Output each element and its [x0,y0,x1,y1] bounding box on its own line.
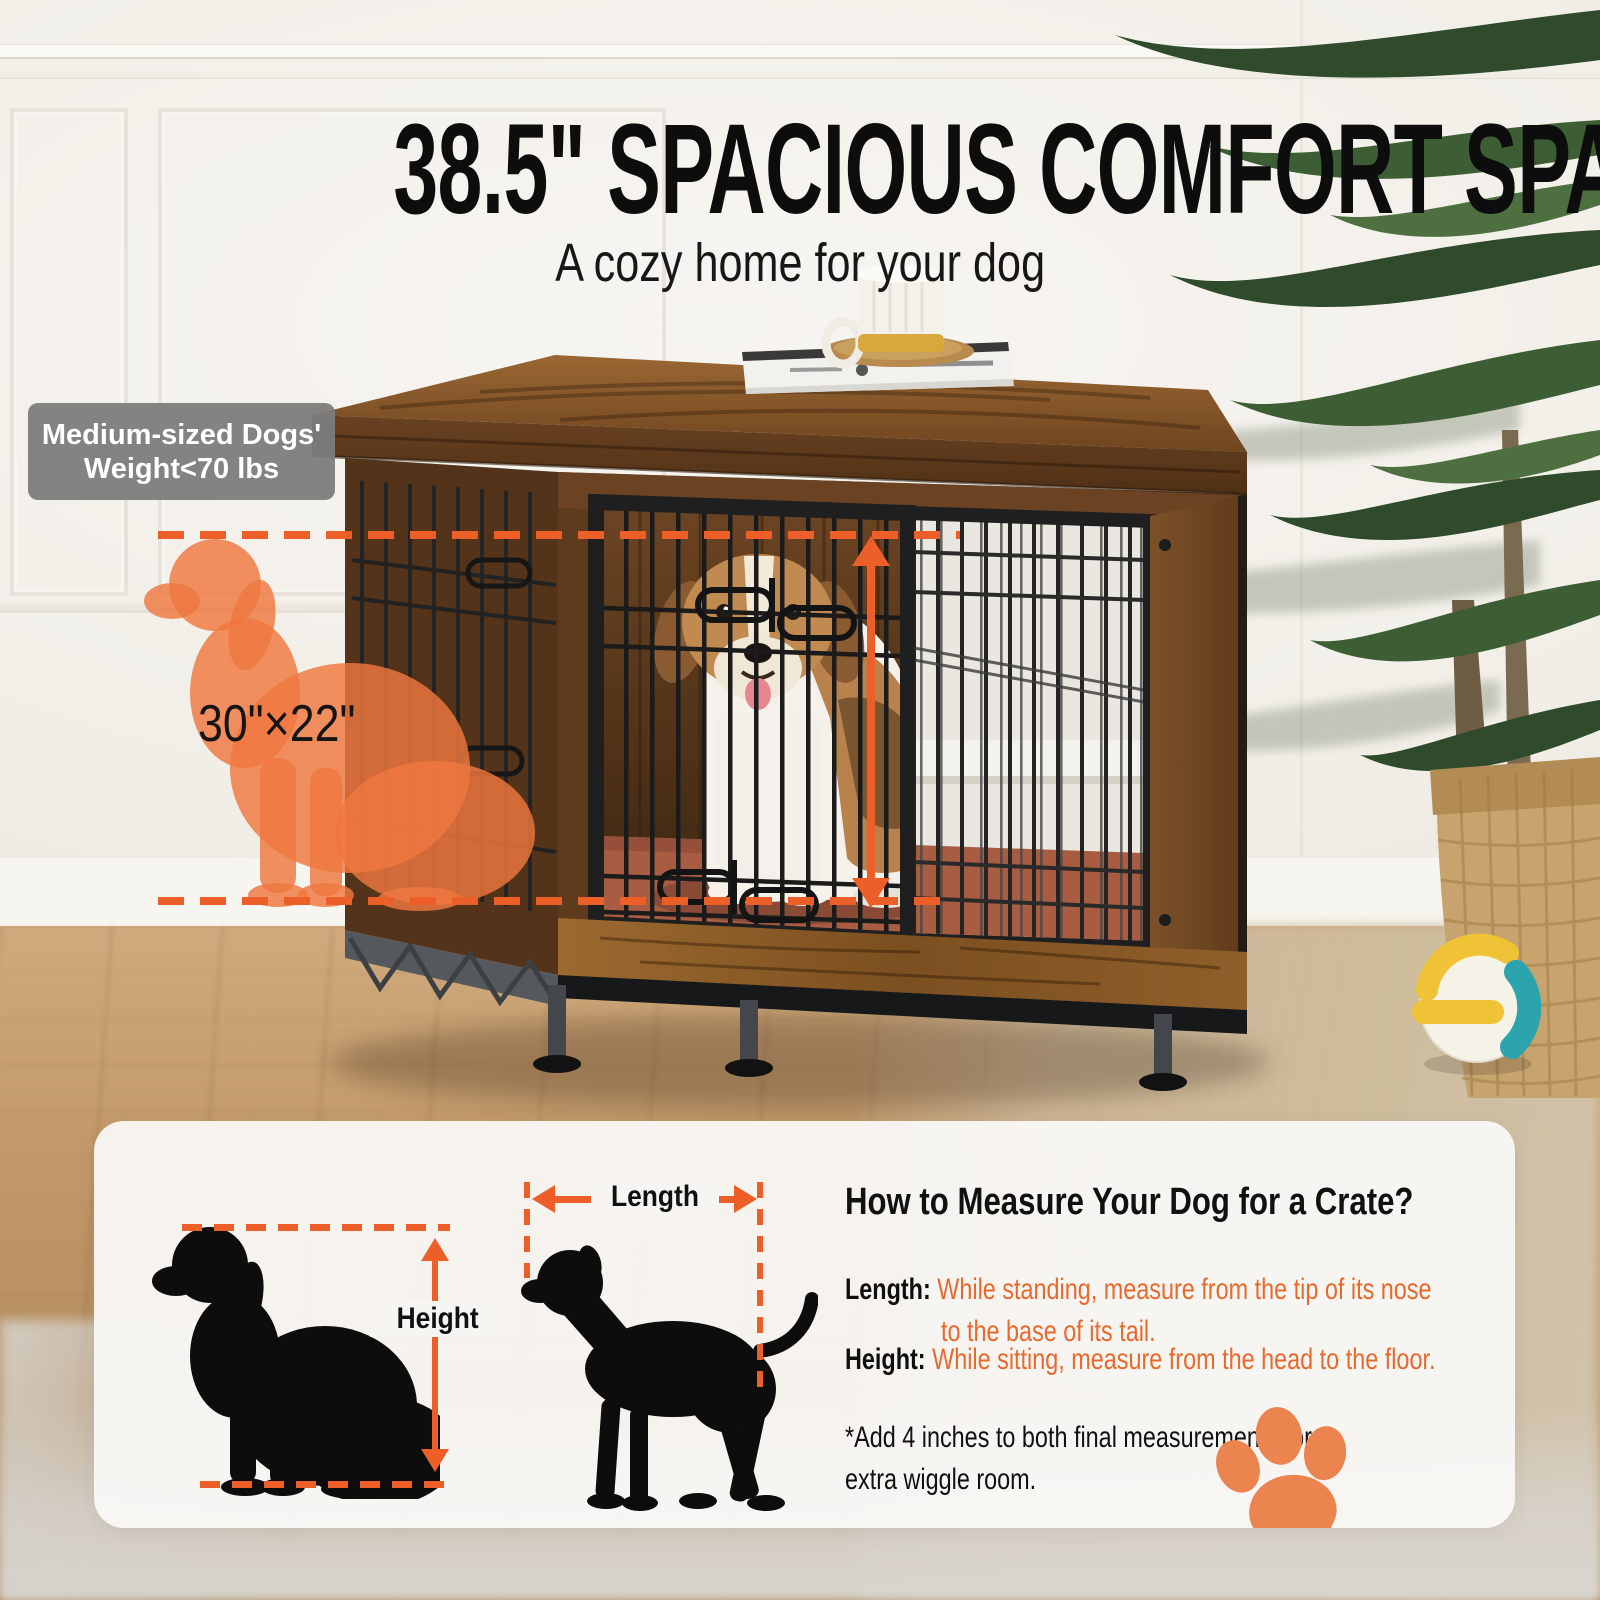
card-height-dash-top [182,1224,450,1231]
arrow-up-icon [852,536,890,566]
card-heading: How to Measure Your Dog for a Crate? [845,1183,1515,1221]
height-text: While sitting, measure from the head to … [932,1343,1435,1376]
arrow-down-icon [421,1449,449,1472]
product-infographic: 30"×22" Medium-sized Dogs' Weight<70 lbs… [0,0,1600,1600]
height-dashed-line-bottom [158,897,950,905]
arrow-up-icon [421,1238,449,1261]
page-title: 38.5" SPACIOUS COMFORT SPACE [0,106,1600,234]
weight-badge: Medium-sized Dogs' Weight<70 lbs [28,403,335,500]
card-height-dash-bottom [200,1481,455,1488]
card-length-dash-left [524,1182,530,1278]
length-arrow-label: Length [591,1179,719,1215]
paw-icon [1210,1403,1370,1528]
standing-dog-silhouette [518,1239,818,1511]
length-instruction-line1: Length: While standing, measure from the… [845,1271,1515,1309]
arrow-left-icon [532,1185,555,1213]
badge-line-2: Weight<70 lbs [28,452,335,486]
toy-ball [1420,945,1534,1075]
height-label: Height: [845,1343,926,1376]
card-height-arrow [421,1238,449,1472]
measure-guide-card: Height [94,1121,1515,1528]
length-label: Length: [845,1273,931,1306]
length-text: While standing, measure from the tip of … [937,1273,1431,1306]
height-arrow-label: Height [370,1301,506,1337]
inner-size-label: 30"×22" [198,694,381,754]
height-dashed-line-top [158,531,960,539]
arrow-down-icon [852,878,890,908]
note-line2: extra wiggle room. [845,1461,1090,1499]
card-length-dash-right [757,1182,763,1390]
page-subtitle: A cozy home for your dog [0,232,1600,294]
badge-line-1: Medium-sized Dogs' [28,418,335,452]
sitting-dog-silhouette [150,1221,440,1499]
height-instruction: Height: While sitting, measure from the … [845,1341,1515,1379]
crate-shadow [330,1016,1270,1108]
arrow-right-icon [734,1185,757,1213]
inner-height-arrow [851,536,891,908]
